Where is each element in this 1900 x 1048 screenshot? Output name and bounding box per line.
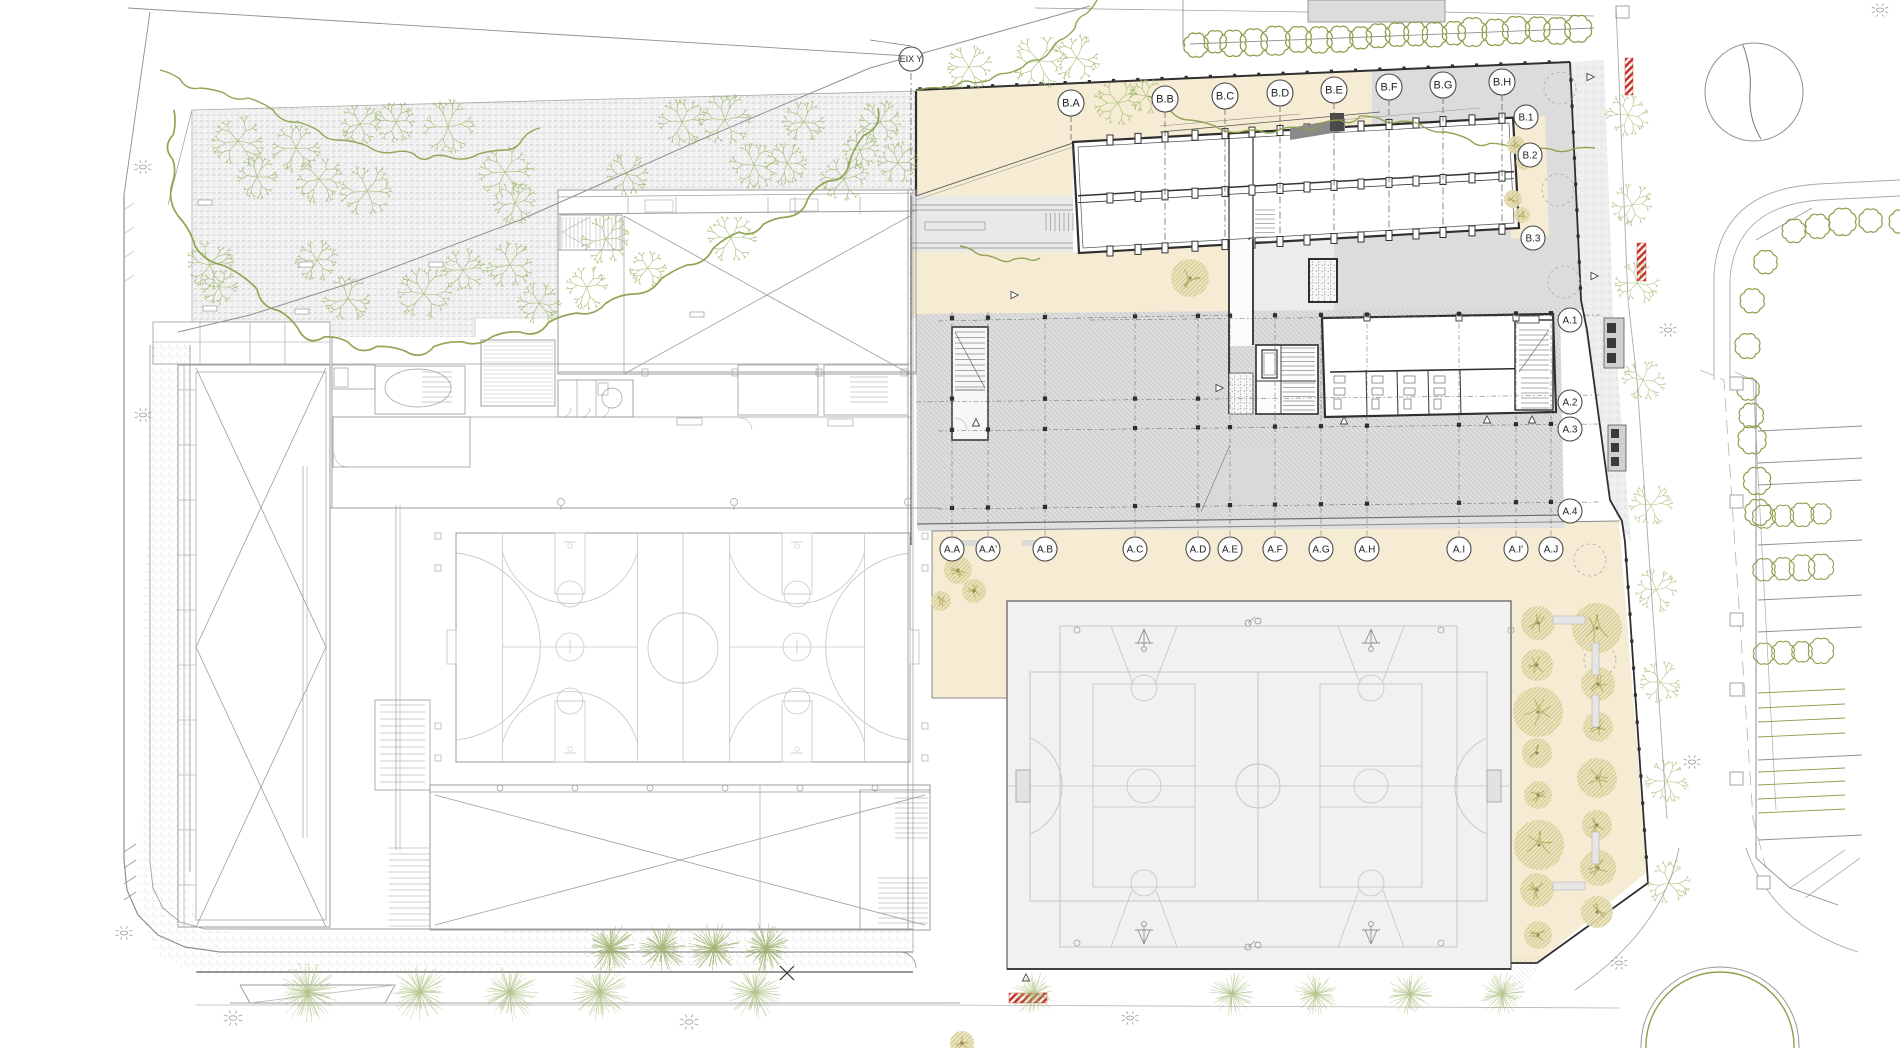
svg-text:A.D: A.D <box>1190 544 1207 555</box>
svg-text:B.C: B.C <box>1216 91 1234 103</box>
svg-text:B.3: B.3 <box>1525 233 1540 244</box>
svg-text:B.H: B.H <box>1493 77 1511 89</box>
svg-text:A.J: A.J <box>1544 544 1558 555</box>
svg-text:EIX Y: EIX Y <box>900 54 923 64</box>
svg-text:A.G: A.G <box>1312 544 1329 555</box>
svg-text:A.3: A.3 <box>1562 424 1577 435</box>
svg-text:B.G: B.G <box>1434 80 1453 92</box>
svg-text:A.4: A.4 <box>1562 506 1577 517</box>
svg-text:B.F: B.F <box>1380 82 1397 94</box>
svg-text:B.D: B.D <box>1271 88 1289 100</box>
svg-text:A.1: A.1 <box>1562 315 1577 326</box>
svg-text:A.I': A.I' <box>1509 544 1523 555</box>
svg-text:A.H: A.H <box>1359 544 1376 555</box>
svg-text:A.E: A.E <box>1222 544 1238 555</box>
svg-text:B.2: B.2 <box>1522 150 1537 161</box>
svg-text:A.C: A.C <box>1127 544 1144 555</box>
svg-text:A.F: A.F <box>1267 544 1283 555</box>
svg-text:B.B: B.B <box>1156 94 1174 106</box>
svg-text:B.E: B.E <box>1325 85 1343 97</box>
svg-text:A.I: A.I <box>1453 544 1465 555</box>
svg-text:A.A': A.A' <box>979 544 997 555</box>
svg-text:A.2: A.2 <box>1562 397 1577 408</box>
svg-text:A.B: A.B <box>1037 544 1053 555</box>
svg-text:B.1: B.1 <box>1518 112 1533 123</box>
svg-text:B.A: B.A <box>1062 98 1080 110</box>
svg-text:A.A: A.A <box>944 544 960 555</box>
